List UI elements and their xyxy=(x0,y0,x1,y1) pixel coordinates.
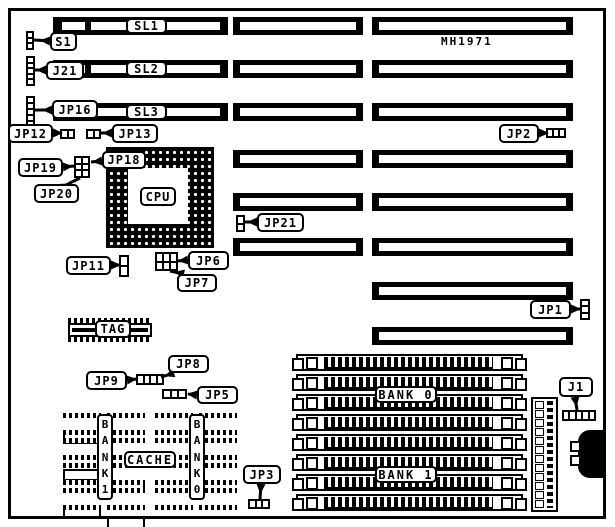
callout-label-s1: S1 xyxy=(50,32,77,51)
connector-jp5 xyxy=(162,389,187,399)
callout-label-jp8: JP8 xyxy=(168,355,209,373)
slot-opening xyxy=(379,243,566,251)
expansion-slot-segment xyxy=(372,282,573,300)
simm-end-clip xyxy=(292,378,304,391)
pin xyxy=(535,410,544,418)
callout-label-jp3: JP3 xyxy=(243,465,281,484)
pin xyxy=(560,130,564,136)
pin xyxy=(164,254,169,261)
simm-end-clip xyxy=(501,417,513,430)
tag-label: TAG xyxy=(95,320,131,338)
slot-opening xyxy=(62,22,85,30)
vertical-letter: K xyxy=(194,468,201,479)
cache-chip-pins-bottom xyxy=(155,480,193,485)
simm-end-clip xyxy=(306,357,318,370)
connector-jp11 xyxy=(119,255,129,277)
pin xyxy=(263,501,268,507)
expansion-slot-segment xyxy=(233,60,363,78)
expansion-slot-segment xyxy=(233,103,363,121)
vertical-letter: A xyxy=(102,435,109,446)
slot-opening xyxy=(240,198,356,206)
pin xyxy=(28,75,33,79)
connector-jp13 xyxy=(86,129,101,139)
callout-label-jp19: JP19 xyxy=(18,158,63,177)
pin xyxy=(83,165,88,170)
simm-end-clip xyxy=(292,358,304,371)
pin xyxy=(28,110,33,114)
simm-end-clip xyxy=(515,418,527,431)
pin xyxy=(171,263,176,270)
cache-chip-pins-bottom xyxy=(63,430,101,435)
pin xyxy=(28,64,33,68)
vertical-letter: 0 xyxy=(194,484,201,495)
pin xyxy=(238,217,243,223)
cache-label: CACHE xyxy=(124,451,176,468)
slot-opening xyxy=(379,287,566,295)
cache-chip-pins-bottom xyxy=(63,480,101,485)
pin xyxy=(548,130,552,136)
simm-end-clip xyxy=(501,497,513,510)
cache-chip-pins-bottom xyxy=(155,505,193,510)
pin xyxy=(95,131,100,137)
simm-contacts xyxy=(324,497,493,509)
callout-label-jp1: JP1 xyxy=(530,300,571,319)
keyboard-connector-icon xyxy=(578,430,606,478)
connector-jp9 xyxy=(136,374,164,385)
callout-label-jp6: JP6 xyxy=(188,251,229,270)
pin xyxy=(28,80,33,84)
simm-contacts xyxy=(324,437,493,449)
connector-j1 xyxy=(562,410,596,421)
simm-end-clip xyxy=(515,438,527,451)
simm-end-clip xyxy=(501,357,513,370)
pin xyxy=(28,33,32,37)
pin xyxy=(238,225,243,231)
pin xyxy=(582,314,588,318)
power-pins xyxy=(535,401,544,508)
slot-opening xyxy=(240,22,356,30)
slot-opening xyxy=(240,65,356,73)
slot-label-sl2: SL2 xyxy=(126,61,167,77)
slot-label-sl3: SL3 xyxy=(126,104,167,120)
expansion-slot-segment xyxy=(233,17,363,35)
slot-opening xyxy=(379,65,566,73)
callout-label-jp18: JP18 xyxy=(102,151,146,169)
connector-s1 xyxy=(26,31,34,50)
callout-label-j21: J21 xyxy=(46,61,84,80)
slot-opening xyxy=(379,22,566,30)
pin xyxy=(535,482,544,490)
pin xyxy=(564,412,568,419)
pin xyxy=(28,104,33,108)
pin xyxy=(257,501,262,507)
pin xyxy=(164,391,170,397)
expansion-slot-segment xyxy=(372,103,573,121)
pin xyxy=(88,131,93,137)
cache-chip-pins-bottom xyxy=(107,505,145,510)
pin xyxy=(164,263,169,270)
pin xyxy=(76,171,81,176)
connector-j21 xyxy=(26,56,35,86)
callout-label-jp11: JP11 xyxy=(66,256,111,275)
pin xyxy=(157,254,162,261)
pin xyxy=(28,44,32,48)
cache-chip-pins-bottom xyxy=(199,505,237,510)
simm-end-clip xyxy=(501,397,513,410)
connector-jp2 xyxy=(546,128,566,138)
keyboard-connector-notch xyxy=(570,441,581,452)
vertical-letter: B xyxy=(194,419,201,430)
simm-end-clip xyxy=(306,497,318,510)
connector-jp21 xyxy=(236,215,245,232)
cache-bank-label-bank0: BANK0 xyxy=(189,414,205,500)
pin xyxy=(172,391,178,397)
simm-socket xyxy=(296,354,523,371)
cache-chip-body xyxy=(107,517,145,527)
expansion-slot-segment xyxy=(372,193,573,211)
simm-end-clip xyxy=(292,418,304,431)
simm-end-clip xyxy=(292,398,304,411)
pin xyxy=(121,257,127,265)
slot-opening xyxy=(379,198,566,206)
vertical-letter: 1 xyxy=(102,484,109,495)
simm-end-clip xyxy=(515,398,527,411)
pin xyxy=(28,58,33,62)
vertical-letter: N xyxy=(194,452,201,463)
simm-contacts xyxy=(324,417,493,429)
simm-end-clip xyxy=(515,458,527,471)
board-title: MH1971 xyxy=(441,35,493,48)
simm-end-clip xyxy=(501,437,513,450)
simm-end-clip xyxy=(306,397,318,410)
simm-end-clip xyxy=(292,438,304,451)
connector-jp6 xyxy=(155,252,178,271)
callout-label-jp2: JP2 xyxy=(499,124,539,143)
simm-end-clip xyxy=(515,498,527,511)
connector-jp1 xyxy=(580,299,590,320)
vertical-letter: K xyxy=(102,468,109,479)
cache-chip-pins-top xyxy=(63,413,101,418)
pin xyxy=(76,158,81,163)
slot-opening xyxy=(379,108,566,116)
pin xyxy=(554,130,558,136)
simm-socket xyxy=(296,434,523,451)
simm-end-clip xyxy=(501,457,513,470)
pin xyxy=(171,254,176,261)
pin xyxy=(250,501,255,507)
pin xyxy=(535,428,544,436)
simm-bank-label-bank0: BANK 0 xyxy=(375,386,437,403)
pin xyxy=(138,376,143,383)
vertical-letter: N xyxy=(102,452,109,463)
simm-socket xyxy=(296,494,523,511)
slot-opening xyxy=(240,108,356,116)
pin xyxy=(145,376,150,383)
cache-chip-pins-bottom xyxy=(63,505,101,510)
pin xyxy=(535,455,544,463)
cache-chip-pins-top xyxy=(63,438,101,443)
pin xyxy=(535,464,544,472)
expansion-slot-segment xyxy=(233,150,363,168)
slot-opening xyxy=(379,332,566,340)
vertical-letter: B xyxy=(102,419,109,430)
motherboard-diagram: MH1971 SL1SL2SL3S1J21JP16JP12JP13JP18JP1… xyxy=(0,0,615,527)
simm-contacts xyxy=(324,357,493,369)
cache-chip-pins-top xyxy=(63,463,101,468)
callout-label-jp9: JP9 xyxy=(86,371,127,390)
pin xyxy=(179,391,185,397)
cache-chip-pins-top xyxy=(155,488,193,493)
callout-label-jp21: JP21 xyxy=(257,213,304,232)
simm-end-clip xyxy=(515,358,527,371)
simm-end-clip xyxy=(515,378,527,391)
connector-jp3 xyxy=(248,499,270,509)
vertical-letter: A xyxy=(194,435,201,446)
cache-chip-pins-top xyxy=(63,488,101,493)
pin xyxy=(158,376,163,383)
pin xyxy=(76,165,81,170)
simm-end-clip xyxy=(292,478,304,491)
cache-chip-pins-bottom xyxy=(63,455,101,460)
pin xyxy=(535,419,544,427)
simm-end-clip xyxy=(501,477,513,490)
keyboard-connector-notch xyxy=(570,455,581,466)
pin xyxy=(83,171,88,176)
pin xyxy=(535,491,544,499)
pin xyxy=(151,376,156,383)
pin xyxy=(69,131,74,137)
simm-end-clip xyxy=(292,498,304,511)
pin xyxy=(121,267,127,275)
callout-label-jp13: JP13 xyxy=(112,124,158,143)
cache-chip-pins-top xyxy=(155,438,193,443)
cache-chip-pins-top xyxy=(155,413,193,418)
pin xyxy=(62,131,67,137)
simm-end-clip xyxy=(501,377,513,390)
callout-label-jp7: JP7 xyxy=(177,274,217,292)
pin xyxy=(28,116,33,120)
simm-bank-label-bank1: BANK 1 xyxy=(375,466,437,483)
simm-end-clip xyxy=(306,477,318,490)
pin xyxy=(582,301,588,305)
slot-opening xyxy=(379,155,566,163)
simm-socket xyxy=(296,414,523,431)
pin xyxy=(570,412,574,419)
cache-bank-label-bank1: BANK1 xyxy=(97,414,113,500)
expansion-slot-segment xyxy=(372,238,573,256)
callout-label-jp5: JP5 xyxy=(197,386,238,404)
callout-label-jp16: JP16 xyxy=(52,100,98,119)
expansion-slot-segment xyxy=(233,238,363,256)
slot-label-sl1: SL1 xyxy=(126,18,167,34)
pin xyxy=(535,473,544,481)
expansion-slot-segment xyxy=(372,150,573,168)
pin xyxy=(535,401,544,409)
expansion-slot-segment xyxy=(372,327,573,345)
connector-jp12 xyxy=(60,129,75,139)
pin xyxy=(535,446,544,454)
pin xyxy=(28,98,33,102)
slot-opening xyxy=(240,155,356,163)
pin xyxy=(582,307,588,311)
cache-chip-pins-bottom xyxy=(155,430,193,435)
expansion-slot-segment xyxy=(233,193,363,211)
pin xyxy=(535,500,544,508)
pin xyxy=(28,69,33,73)
pin xyxy=(590,412,594,419)
expansion-slot-segment xyxy=(372,17,573,35)
cpu-label: CPU xyxy=(140,187,176,206)
pin xyxy=(157,263,162,270)
power-connector xyxy=(531,397,558,512)
pin xyxy=(28,39,32,43)
slot-opening xyxy=(240,243,356,251)
simm-end-clip xyxy=(306,457,318,470)
pin xyxy=(577,412,581,419)
simm-end-clip xyxy=(306,437,318,450)
callout-label-jp12: JP12 xyxy=(8,124,53,143)
simm-end-clip xyxy=(292,458,304,471)
simm-end-clip xyxy=(515,478,527,491)
pin xyxy=(83,158,88,163)
pin xyxy=(583,412,587,419)
callout-label-jp20: JP20 xyxy=(34,184,79,203)
simm-end-clip xyxy=(306,377,318,390)
callout-label-j1: J1 xyxy=(559,377,593,397)
connector-jp18 xyxy=(74,156,90,178)
expansion-slot-segment xyxy=(372,60,573,78)
power-contacts xyxy=(547,401,553,508)
pin xyxy=(535,437,544,445)
simm-end-clip xyxy=(306,417,318,430)
